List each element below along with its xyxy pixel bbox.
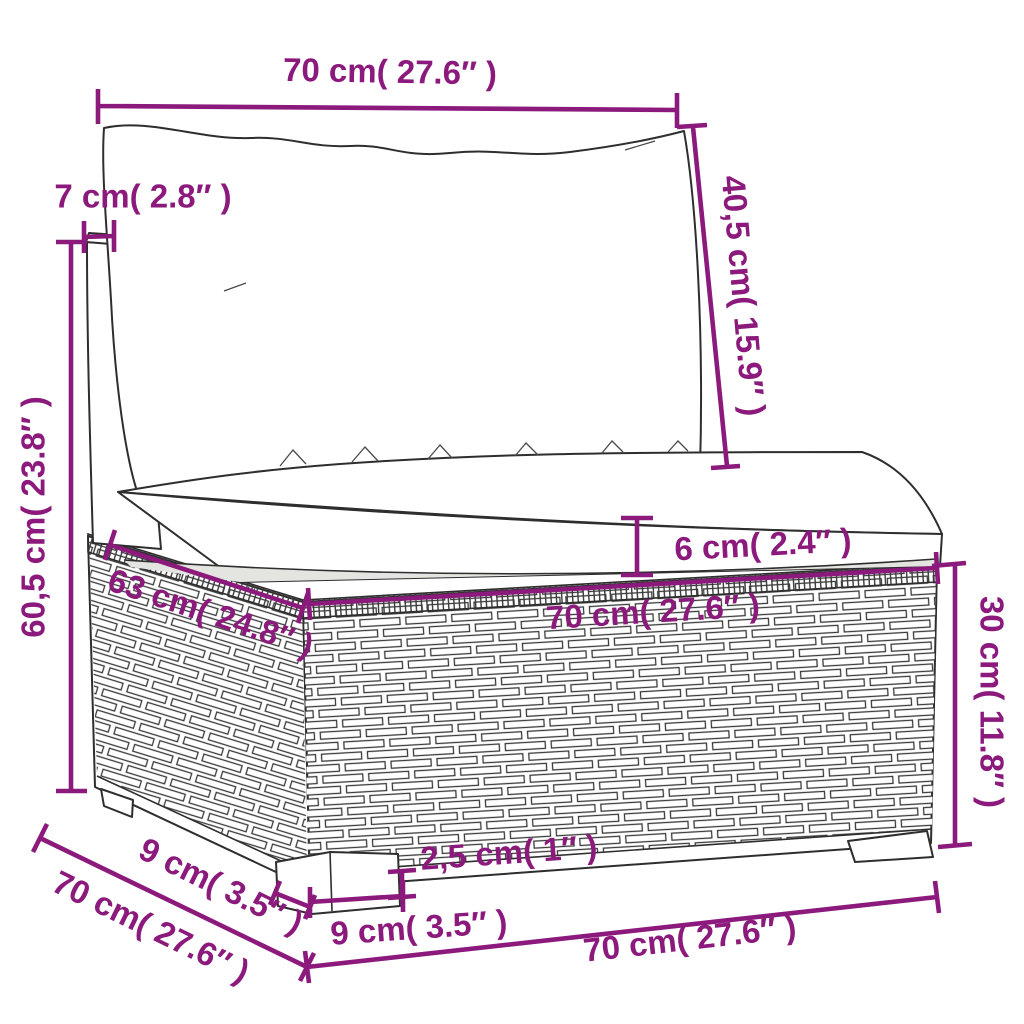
dim-back-total-height: 60,5 cm( 23.8″ ) bbox=[15, 242, 87, 791]
sofa-illustration bbox=[86, 125, 942, 914]
diagram-canvas: 70 cm( 27.6″ ) 40,5 cm( 15.9″ ) 7 cm( 2.… bbox=[0, 0, 1024, 1024]
base-height-label: 30 cm( 11.8″ ) bbox=[973, 596, 1010, 808]
dim-back-cushion-width: 70 cm( 27.6″ ) bbox=[98, 51, 677, 128]
backrest-thickness-label: 7 cm( 2.8″ ) bbox=[54, 178, 231, 215]
dimension-diagram: 70 cm( 27.6″ ) 40,5 cm( 15.9″ ) 7 cm( 2.… bbox=[0, 0, 1024, 1024]
base-width-label: 70 cm( 27.6″ ) bbox=[581, 908, 798, 969]
back-cushion-height-label: 40,5 cm( 15.9″ ) bbox=[715, 174, 773, 418]
back-cushion-width-label: 70 cm( 27.6″ ) bbox=[283, 51, 498, 92]
back-total-height-label: 60,5 cm( 23.8″ ) bbox=[15, 396, 52, 637]
dim-base-height: 30 cm( 11.8″ ) bbox=[932, 563, 1010, 847]
